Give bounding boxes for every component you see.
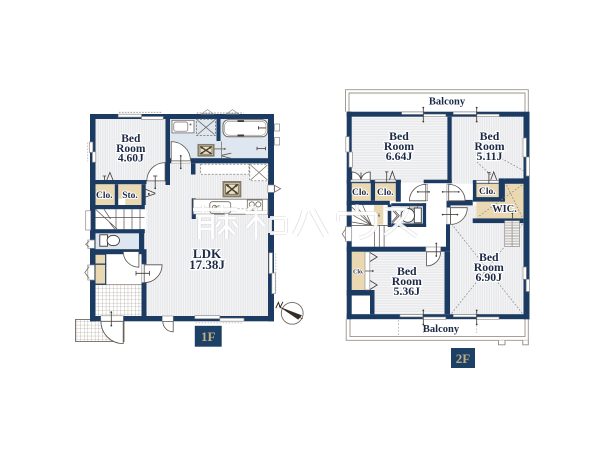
svg-text:6.64J: 6.64J (386, 149, 413, 163)
svg-text:Clo.: Clo. (479, 187, 496, 197)
svg-text:Balcony: Balcony (423, 324, 460, 335)
svg-text:Clo.: Clo. (353, 270, 364, 276)
svg-text:WIC.: WIC. (492, 204, 517, 215)
svg-text:Balcony: Balcony (429, 97, 466, 108)
svg-text:17.38J: 17.38J (189, 257, 225, 272)
svg-text:Clo.: Clo. (352, 188, 369, 198)
svg-text:Clo.: Clo. (96, 191, 113, 201)
svg-text:Sto.: Sto. (122, 191, 138, 201)
svg-text:Clo.: Clo. (377, 188, 394, 198)
svg-text:1F: 1F (201, 329, 216, 344)
svg-text:5.36J: 5.36J (394, 284, 421, 298)
svg-text:5.11J: 5.11J (477, 149, 503, 163)
svg-text:2F: 2F (456, 351, 471, 366)
svg-text:4.60J: 4.60J (118, 153, 144, 165)
svg-text:6.90J: 6.90J (476, 270, 503, 284)
